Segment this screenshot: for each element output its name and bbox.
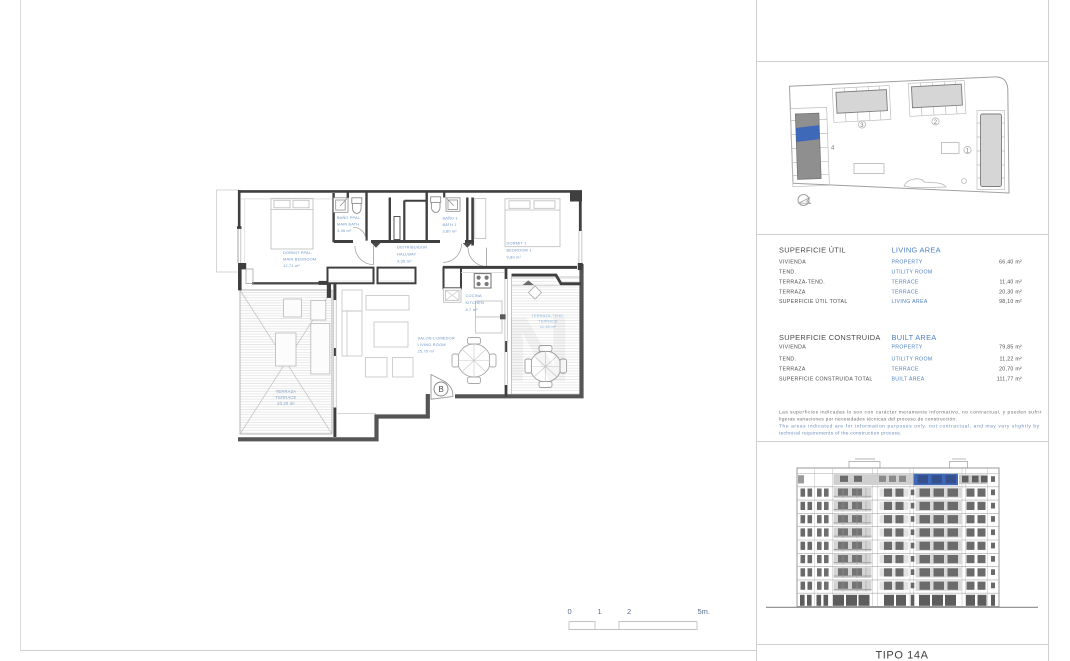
- svg-text:3,45 m²: 3,45 m²: [337, 229, 352, 233]
- svg-text:11,40 m²: 11,40 m²: [1000, 279, 1023, 285]
- svg-text:BUILT AREA: BUILT AREA: [892, 377, 925, 383]
- svg-text:BEDROOM 1: BEDROOM 1: [507, 248, 532, 253]
- svg-text:5m.: 5m.: [698, 607, 711, 616]
- svg-text:BAÑO 1: BAÑO 1: [443, 216, 458, 221]
- svg-text:98,10 m²: 98,10 m²: [999, 299, 1022, 305]
- svg-text:The areas indicated are for in: The areas indicated are for information …: [779, 424, 1040, 430]
- svg-text:UTILITY ROOM: UTILITY ROOM: [892, 356, 933, 362]
- svg-text:SALON-COMEDOR: SALON-COMEDOR: [418, 336, 455, 341]
- svg-text:Las superficies indicadas lo s: Las superficies indicadas lo son con car…: [779, 410, 1042, 416]
- svg-text:TERRAZA: TERRAZA: [779, 289, 806, 295]
- svg-text:TERRACE: TERRACE: [276, 395, 297, 400]
- svg-text:DORMIT PPAL.: DORMIT PPAL.: [283, 250, 313, 255]
- svg-text:COCINA: COCINA: [466, 293, 483, 298]
- svg-text:TERRACE: TERRACE: [892, 289, 919, 295]
- svg-text:UTILITY ROOM: UTILITY ROOM: [892, 269, 933, 275]
- svg-text:ligeras variaciones por necesi: ligeras variaciones por necesidades técn…: [779, 417, 957, 423]
- svg-text:25,75 m²: 25,75 m²: [418, 349, 435, 354]
- svg-text:TEND.: TEND.: [779, 356, 796, 362]
- svg-text:VIVIENDA: VIVIENDA: [779, 344, 806, 350]
- svg-text:TERRACE: TERRACE: [892, 279, 919, 285]
- svg-text:TERRAZA: TERRAZA: [779, 367, 806, 373]
- svg-text:technical requirements of the: technical requirements of the constructi…: [779, 431, 902, 437]
- svg-text:TERRAZA-TEND.: TERRAZA-TEND.: [779, 279, 825, 285]
- svg-text:LIVING AREA: LIVING AREA: [892, 299, 928, 305]
- svg-text:111,77 m²: 111,77 m²: [997, 377, 1022, 383]
- svg-text:TERRAZA: TERRAZA: [276, 389, 297, 394]
- svg-text:BATH 1: BATH 1: [443, 223, 457, 227]
- svg-text:20,30 m²: 20,30 m²: [999, 289, 1022, 295]
- svg-text:20,30 m²: 20,30 m²: [277, 401, 295, 406]
- svg-text:0: 0: [568, 607, 572, 616]
- svg-text:LIVING AREA: LIVING AREA: [892, 246, 941, 255]
- svg-text:3,80 m²: 3,80 m²: [443, 230, 458, 234]
- svg-text:BAÑO PPAL.: BAÑO PPAL.: [337, 215, 361, 220]
- svg-text:DORMIT 1: DORMIT 1: [507, 241, 527, 246]
- svg-text:PROPERTY: PROPERTY: [892, 259, 923, 265]
- svg-text:9,80 m²: 9,80 m²: [507, 255, 522, 260]
- svg-text:12,71 m²: 12,71 m²: [283, 263, 300, 268]
- svg-text:SUPERFICIE CONSTRUIDA TOTAL: SUPERFICIE CONSTRUIDA TOTAL: [779, 377, 873, 383]
- svg-text:66,40 m²: 66,40 m²: [999, 259, 1022, 265]
- svg-text:LIVING ROOM: LIVING ROOM: [418, 342, 446, 347]
- svg-text:MAIN BEDROOM: MAIN BEDROOM: [283, 257, 316, 262]
- svg-text:B: B: [439, 385, 444, 394]
- svg-text:TEND.: TEND.: [779, 269, 796, 275]
- svg-text:SUPERFICIE CONSTRUIDA: SUPERFICIE CONSTRUIDA: [779, 333, 881, 342]
- svg-text:TERRACE: TERRACE: [892, 367, 919, 373]
- svg-text:SUPERFICIE ÚTIL: SUPERFICIE ÚTIL: [779, 246, 846, 255]
- svg-text:KITCHEN: KITCHEN: [466, 300, 484, 305]
- svg-text:TIPO 14A: TIPO 14A: [875, 650, 928, 661]
- svg-text:N: N: [505, 299, 571, 401]
- svg-text:20,70 m²: 20,70 m²: [999, 367, 1022, 373]
- svg-text:11,22 m²: 11,22 m²: [1000, 356, 1023, 362]
- svg-text:HALLWAY: HALLWAY: [397, 252, 416, 257]
- svg-text:DISTRIBUIDOR: DISTRIBUIDOR: [397, 245, 427, 250]
- svg-text:4,35 m²: 4,35 m²: [397, 259, 412, 264]
- svg-text:VIVIENDA: VIVIENDA: [779, 259, 806, 265]
- svg-text:79,85 m²: 79,85 m²: [999, 344, 1022, 350]
- svg-text:SUPERFICIE ÚTIL TOTAL: SUPERFICIE ÚTIL TOTAL: [779, 298, 848, 305]
- svg-text:2: 2: [627, 607, 631, 616]
- svg-text:1: 1: [598, 607, 602, 616]
- svg-text:PROPERTY: PROPERTY: [892, 344, 923, 350]
- svg-text:6,7 m²: 6,7 m²: [466, 307, 479, 312]
- svg-text:MAIN BATH: MAIN BATH: [337, 223, 359, 227]
- svg-text:BUILT AREA: BUILT AREA: [892, 333, 937, 342]
